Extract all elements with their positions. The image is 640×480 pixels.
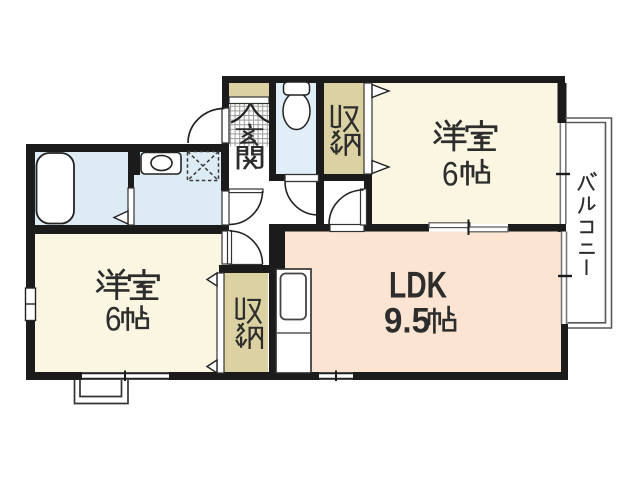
svg-text:LDK: LDK — [389, 265, 447, 306]
svg-text:6: 6 — [105, 301, 122, 339]
svg-text:6: 6 — [442, 156, 459, 194]
svg-text:9.5: 9.5 — [384, 302, 430, 341]
